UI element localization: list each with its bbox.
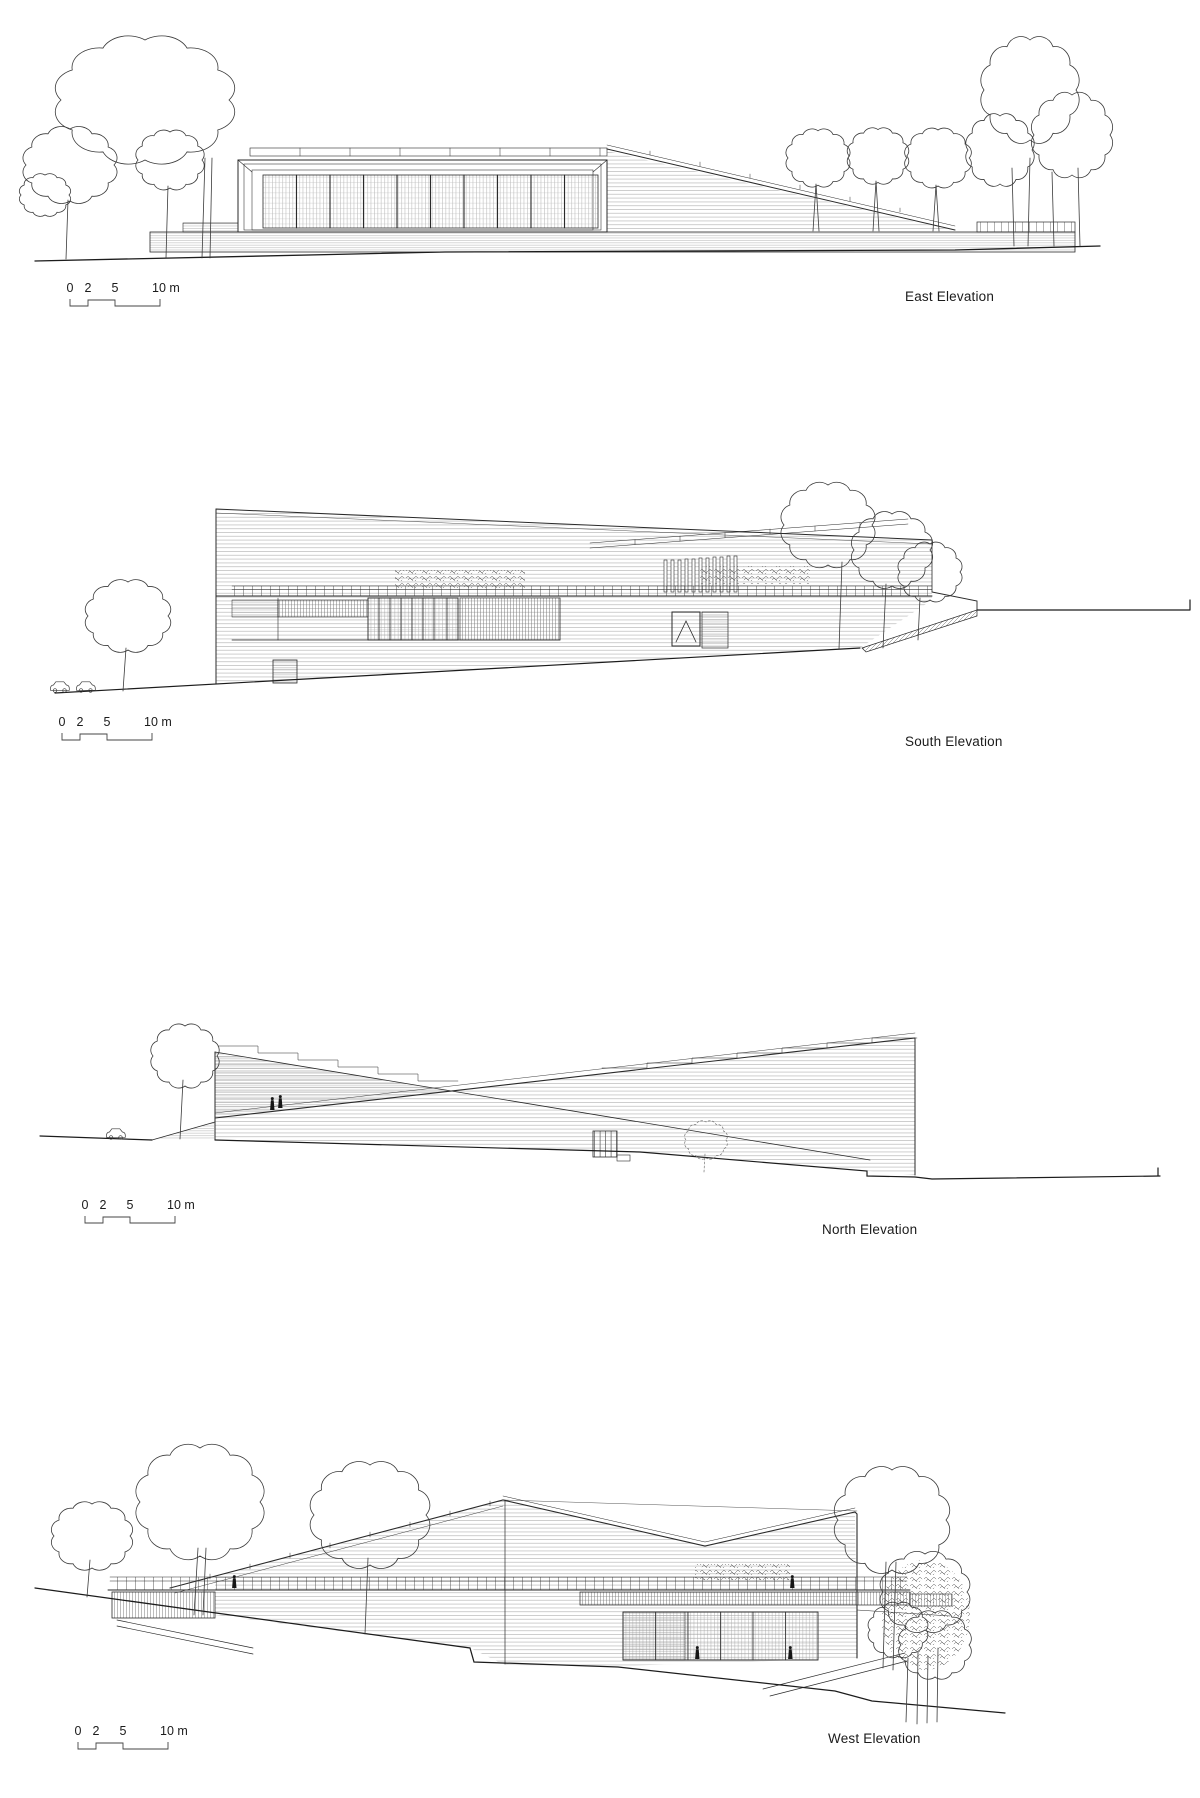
- scale-tick-label: 5: [120, 1724, 127, 1738]
- scale-tick-label: 5: [104, 715, 111, 729]
- scale-bar-graphic: [79, 1214, 209, 1226]
- scale-bar-east: 0 2 5 10 m: [64, 281, 204, 311]
- scale-tick-label: 0: [82, 1198, 89, 1212]
- scale-bar-north: 0 2 5 10 m: [79, 1198, 219, 1228]
- drawing-sheet: 0 2 5 10 m East Elevation 0 2 5 10 m Sou…: [0, 0, 1200, 1798]
- scale-tick-label: 2: [100, 1198, 107, 1212]
- elevation-label-north: North Elevation: [822, 1222, 917, 1237]
- scale-tick-label: 2: [85, 281, 92, 295]
- elevation-label-south: South Elevation: [905, 734, 1003, 749]
- scale-tick-label: 0: [59, 715, 66, 729]
- scale-tick-label: 10 m: [152, 281, 180, 295]
- scale-tick-label: 10 m: [160, 1724, 188, 1738]
- scale-tick-label: 10 m: [144, 715, 172, 729]
- elevation-drawings: [0, 0, 1200, 1798]
- scale-tick-label: 2: [93, 1724, 100, 1738]
- scale-tick-label: 10 m: [167, 1198, 195, 1212]
- scale-tick-label: 0: [75, 1724, 82, 1738]
- west-elevation-drawing: [35, 1444, 1005, 1724]
- north-car: [107, 1129, 126, 1140]
- scale-bar-graphic: [64, 297, 194, 309]
- scale-bar-south: 0 2 5 10 m: [56, 715, 196, 745]
- scale-bar-graphic: [72, 1740, 202, 1752]
- north-building: [152, 1033, 917, 1175]
- elevation-label-west: West Elevation: [828, 1731, 921, 1746]
- south-elevation-drawing: [51, 482, 1191, 693]
- north-elevation-drawing: [40, 1024, 1160, 1179]
- scale-bar-graphic: [56, 731, 186, 743]
- east-elevation-drawing: [19, 36, 1112, 261]
- south-cars: [51, 682, 96, 693]
- scale-tick-label: 2: [77, 715, 84, 729]
- scale-bar-west: 0 2 5 10 m: [72, 1724, 212, 1754]
- west-building: [108, 1496, 952, 1696]
- south-building: [216, 509, 977, 684]
- scale-tick-label: 0: [67, 281, 74, 295]
- east-building: [150, 145, 1075, 252]
- scale-tick-label: 5: [112, 281, 119, 295]
- elevation-label-east: East Elevation: [905, 289, 994, 304]
- scale-tick-label: 5: [127, 1198, 134, 1212]
